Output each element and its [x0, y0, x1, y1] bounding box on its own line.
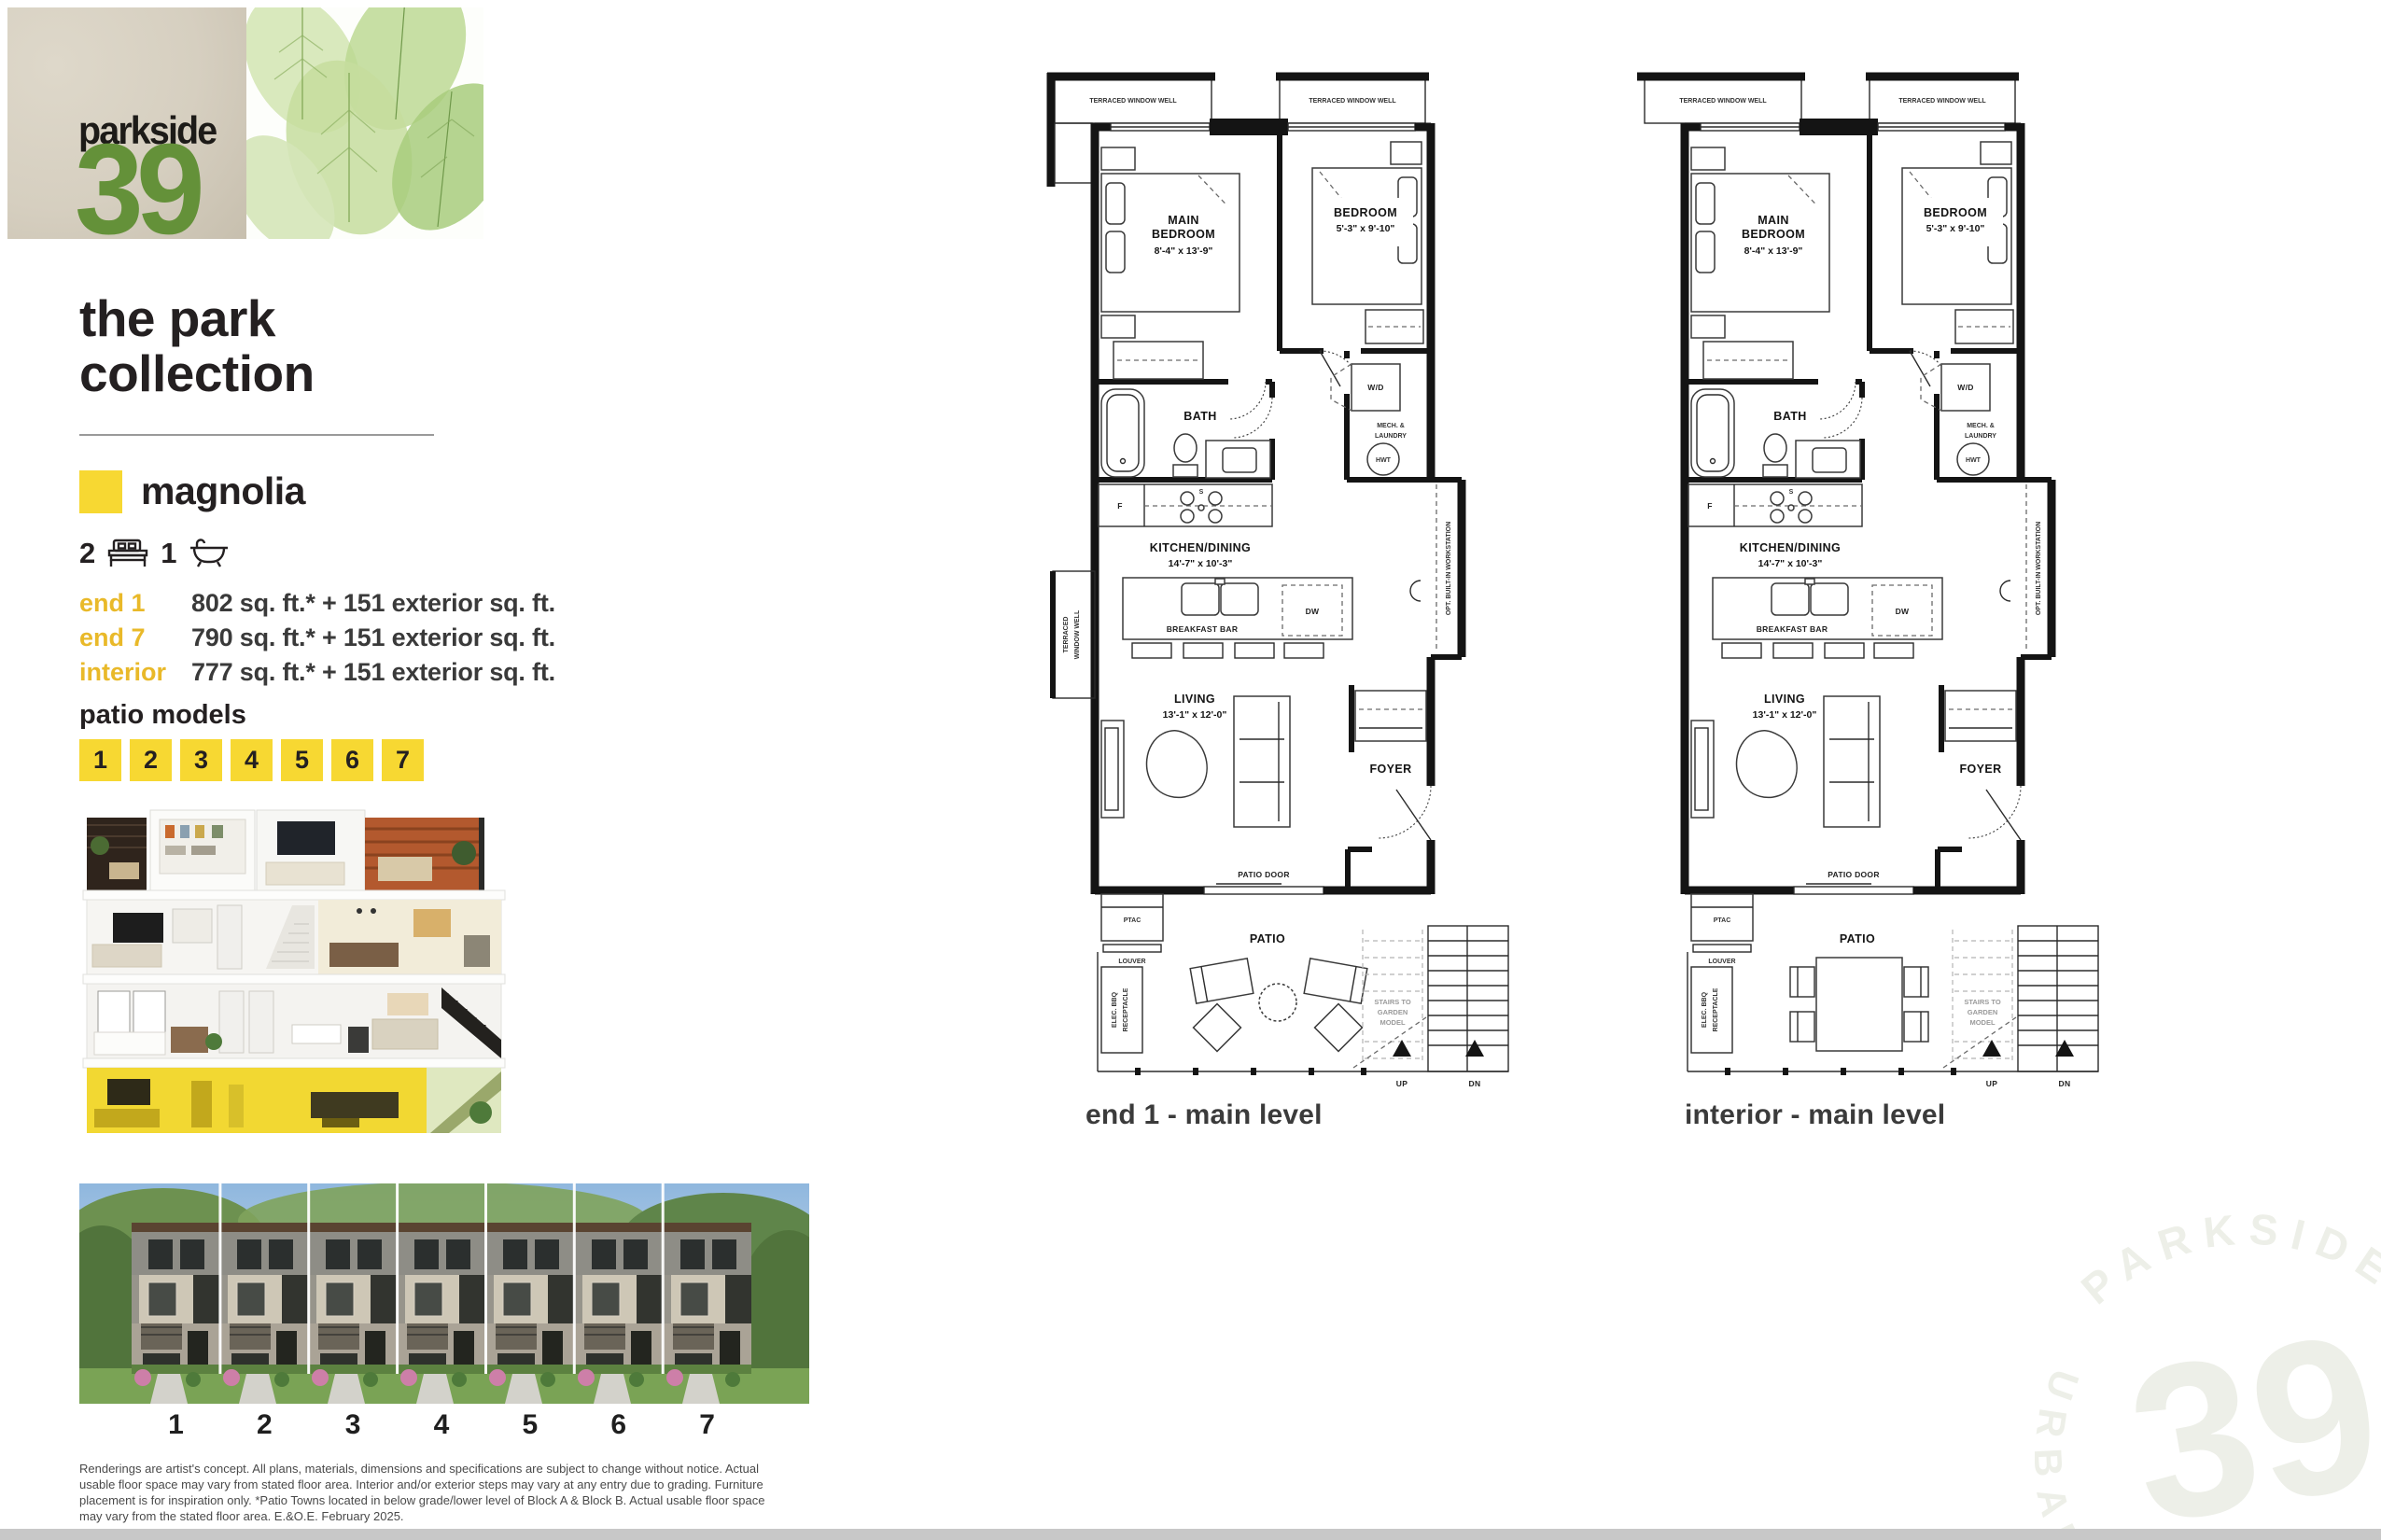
- unit-label-3: 3: [309, 1409, 398, 1441]
- mech-laundry-room: W/D MECH. & LAUNDRY HWT: [1331, 364, 1407, 475]
- spec-table: end 1 802 sq. ft.* + 151 exterior sq. ft…: [79, 586, 555, 690]
- mech-label: LAUNDRY: [1375, 433, 1407, 440]
- side-well-label: TERRACED: [1063, 617, 1070, 653]
- patio-model-4: 4: [231, 739, 273, 781]
- dishwasher-label: DW: [1306, 607, 1320, 616]
- living-label: LIVING: [1764, 693, 1805, 706]
- patio-model-6: 6: [331, 739, 373, 781]
- page-title-line1: the park: [79, 291, 315, 346]
- logo-banner: parkside 39: [7, 7, 483, 239]
- foyer: FOYER: [1355, 691, 1431, 840]
- ptac-unit: PTAC LOUVER: [1691, 894, 1753, 965]
- plan-caption: interior - main level: [1685, 1099, 2100, 1131]
- bath-icon: [189, 538, 230, 569]
- ptac-unit: PTAC LOUVER: [1101, 894, 1163, 965]
- mech-label: MECH. &: [1967, 423, 1995, 429]
- workstation-nook: OPT. BUILT-IN WORKSTATION: [2000, 484, 2042, 652]
- stairs: STAIRS TO GARDEN MODEL UP DN: [1943, 926, 2098, 1088]
- watermark-logo: PARKSIDE URBAN 39: [2035, 1174, 2381, 1540]
- patio-door-label: PATIO DOOR: [1238, 870, 1290, 879]
- hwt-label: HWT: [1966, 457, 1982, 464]
- leaf-image: [246, 7, 483, 239]
- model-color-swatch: [79, 470, 122, 513]
- stairs: STAIRS TO GARDEN MODEL UP DN: [1353, 926, 1508, 1088]
- patio-label: PATIO: [1250, 932, 1285, 945]
- living-room: LIVING 13'-1" x 12'-0": [1101, 693, 1290, 827]
- stairs-note: MODEL: [1380, 1018, 1406, 1027]
- plan-caption: end 1 - main level: [1085, 1099, 1510, 1131]
- bathroom: BATH: [1101, 389, 1272, 478]
- bedroom-dims: 5'-3" x 9'-10": [1926, 223, 1985, 234]
- living-dims: 13'-1" x 12'-0": [1163, 709, 1227, 721]
- bbq-label: ELEC. BBQ: [1112, 991, 1118, 1028]
- washer-dryer-label: W/D: [1367, 383, 1383, 392]
- bedroom-label: BEDROOM: [1334, 206, 1397, 219]
- foyer-label: FOYER: [1959, 763, 2001, 776]
- mech-label: MECH. &: [1377, 423, 1405, 429]
- bbq-label: ELEC. BBQ: [1702, 991, 1708, 1028]
- floor-plan-interior-drawing: TERRACED WINDOW WELL TERRACED WINDOW WEL…: [1633, 69, 2100, 1096]
- spec-value: 790 sq. ft.* + 151 exterior sq. ft.: [191, 623, 555, 652]
- stairs-note: STAIRS TO: [1374, 998, 1410, 1006]
- down-label: DN: [2059, 1079, 2071, 1088]
- fridge-label: F: [1707, 501, 1713, 511]
- second-bedroom: BEDROOM 5'-3" x 9'-10": [1312, 142, 1423, 343]
- kitchen-dims: 14'-7" x 10'-3": [1758, 558, 1823, 569]
- spec-label: end 7: [79, 623, 191, 652]
- patio-model-numbers: 1 2 3 4 5 6 7: [79, 739, 424, 781]
- unit-label-6: 6: [574, 1409, 663, 1441]
- svg-text:URBAN: URBAN: [2035, 1365, 2097, 1540]
- patio-model-5: 5: [281, 739, 323, 781]
- footer-bar: [0, 1529, 2381, 1540]
- brand-number: 39: [75, 125, 198, 254]
- floor-plan-end1-drawing: TERRACED WINDOW WELL TERRACED WINDOW WEL…: [1043, 69, 1510, 1096]
- unit-label-5: 5: [485, 1409, 574, 1441]
- bbq-label: RECEPTACLE: [1713, 987, 1719, 1031]
- floor-plan-interior: TERRACED WINDOW WELL TERRACED WINDOW WEL…: [1633, 69, 2100, 1131]
- cross-section-illustration: [79, 805, 509, 1143]
- patio: PATIO ELEC. BBQ RECEPTACLE: [1098, 932, 1508, 1075]
- main-bedroom-label: BEDROOM: [1742, 228, 1805, 241]
- stove-label: S: [1789, 489, 1794, 496]
- main-bedroom: MAIN BEDROOM 8'-4" x 13'-9": [1101, 147, 1240, 338]
- side-well-label: WINDOW WELL: [1074, 609, 1081, 659]
- bath-label: BATH: [1183, 410, 1216, 423]
- workstation-label: OPT. BUILT-IN WORKSTATION: [2036, 522, 2042, 615]
- hwt-label: HWT: [1376, 457, 1392, 464]
- patio-model-7: 7: [382, 739, 424, 781]
- workstation-label: OPT. BUILT-IN WORKSTATION: [1446, 522, 1452, 615]
- main-bedroom-label: BEDROOM: [1152, 228, 1215, 241]
- stove-label: S: [1199, 489, 1204, 496]
- spec-row: end 7 790 sq. ft.* + 151 exterior sq. ft…: [79, 621, 555, 655]
- leaf-illustration: [246, 7, 483, 239]
- page-title-line2: collection: [79, 346, 315, 401]
- beds-baths-row: 2 1: [79, 537, 230, 570]
- spec-value: 777 sq. ft.* + 151 exterior sq. ft.: [191, 658, 555, 687]
- kitchen-label: KITCHEN/DINING: [1150, 541, 1251, 554]
- living-room: LIVING 13'-1" x 12'-0": [1691, 693, 1880, 827]
- stairs-note: GARDEN: [1378, 1008, 1408, 1016]
- side-window-well: TERRACED WINDOW WELL: [1053, 571, 1095, 698]
- up-label: UP: [1986, 1079, 1997, 1088]
- living-label: LIVING: [1174, 693, 1215, 706]
- floor-plan-end1: TERRACED WINDOW WELL TERRACED WINDOW WEL…: [1043, 69, 1510, 1131]
- window-well-label: TERRACED WINDOW WELL: [1898, 98, 1986, 105]
- brochure-page: parkside 39 the park collection magnolia…: [0, 0, 2381, 1540]
- unit-label-7: 7: [663, 1409, 751, 1441]
- bathroom: BATH: [1691, 389, 1862, 478]
- washer-dryer-label: W/D: [1957, 383, 1973, 392]
- workstation-nook: OPT. BUILT-IN WORKSTATION: [1410, 484, 1452, 652]
- foyer: FOYER: [1945, 691, 2021, 840]
- page-title: the park collection: [79, 291, 315, 402]
- patio-label: PATIO: [1840, 932, 1875, 945]
- beds-count: 2: [79, 537, 95, 570]
- ptac-label: PTAC: [1714, 917, 1731, 924]
- spec-label: end 1: [79, 589, 191, 618]
- baths-count: 1: [161, 537, 176, 570]
- patio: PATIO ELEC. BBQ RECEPTACLE: [1688, 932, 2098, 1075]
- louver-label: LOUVER: [1708, 959, 1735, 965]
- breakfast-bar-label: BREAKFAST BAR: [1757, 624, 1828, 634]
- mech-label: LAUNDRY: [1965, 433, 1996, 440]
- main-bedroom-dims: 8'-4" x 13'-9": [1744, 245, 1803, 257]
- patio-models-heading: patio models: [79, 700, 246, 731]
- stairs-note: STAIRS TO: [1964, 998, 2000, 1006]
- bbq-label: RECEPTACLE: [1123, 987, 1129, 1031]
- mech-laundry-room: W/D MECH. & LAUNDRY HWT: [1921, 364, 1996, 475]
- unit-label-1: 1: [132, 1409, 220, 1441]
- second-bedroom: BEDROOM 5'-3" x 9'-10": [1902, 142, 2013, 343]
- ptac-label: PTAC: [1124, 917, 1141, 924]
- down-label: DN: [1469, 1079, 1481, 1088]
- breakfast-bar-label: BREAKFAST BAR: [1167, 624, 1239, 634]
- watermark-number: 39: [2113, 1286, 2381, 1540]
- bath-label: BATH: [1773, 410, 1806, 423]
- disclaimer-text: Renderings are artist's concept. All pla…: [79, 1462, 777, 1525]
- patio-model-1: 1: [79, 739, 121, 781]
- bedroom-dims: 5'-3" x 9'-10": [1337, 223, 1395, 234]
- louver-label: LOUVER: [1118, 959, 1145, 965]
- foyer-label: FOYER: [1369, 763, 1411, 776]
- stairs-note: MODEL: [1969, 1018, 1996, 1027]
- patio-model-2: 2: [130, 739, 172, 781]
- kitchen-label: KITCHEN/DINING: [1740, 541, 1841, 554]
- spec-row: end 1 802 sq. ft.* + 151 exterior sq. ft…: [79, 586, 555, 621]
- main-bedroom: MAIN BEDROOM 8'-4" x 13'-9": [1691, 147, 1829, 338]
- building-rendering: [79, 1183, 809, 1408]
- patio-model-3: 3: [180, 739, 222, 781]
- window-well-label: TERRACED WINDOW WELL: [1309, 98, 1396, 105]
- fridge-label: F: [1117, 501, 1123, 511]
- dishwasher-label: DW: [1896, 607, 1910, 616]
- main-bedroom-dims: 8'-4" x 13'-9": [1155, 245, 1213, 257]
- living-dims: 13'-1" x 12'-0": [1753, 709, 1817, 721]
- bed-icon: [106, 538, 149, 569]
- model-name: magnolia: [141, 469, 305, 513]
- bedroom-label: BEDROOM: [1924, 206, 1987, 219]
- window-well-label: TERRACED WINDOW WELL: [1679, 98, 1767, 105]
- unit-label-2: 2: [220, 1409, 309, 1441]
- spec-label: interior: [79, 658, 191, 687]
- spec-row: interior 777 sq. ft.* + 151 exterior sq.…: [79, 655, 555, 690]
- spec-value: 802 sq. ft.* + 151 exterior sq. ft.: [191, 589, 555, 618]
- patio-door-label: PATIO DOOR: [1828, 870, 1880, 879]
- main-bedroom-label: MAIN: [1758, 214, 1789, 227]
- kitchen: F S KITCHEN/DINING 14'-7" x 10'-3" DW BR…: [1688, 484, 1942, 658]
- window-well-label: TERRACED WINDOW WELL: [1089, 98, 1177, 105]
- kitchen-dims: 14'-7" x 10'-3": [1169, 558, 1233, 569]
- unit-number-labels: 1 2 3 4 5 6 7: [132, 1409, 751, 1441]
- divider-rule: [79, 434, 434, 436]
- model-row: magnolia: [79, 469, 305, 513]
- main-bedroom-label: MAIN: [1168, 214, 1199, 227]
- unit-label-4: 4: [398, 1409, 486, 1441]
- up-label: UP: [1396, 1079, 1408, 1088]
- kitchen: F S KITCHEN/DINING 14'-7" x 10'-3" DW BR…: [1099, 484, 1352, 658]
- watermark-arc-text: URBAN: [2035, 1365, 2097, 1540]
- stairs-note: GARDEN: [1968, 1008, 1998, 1016]
